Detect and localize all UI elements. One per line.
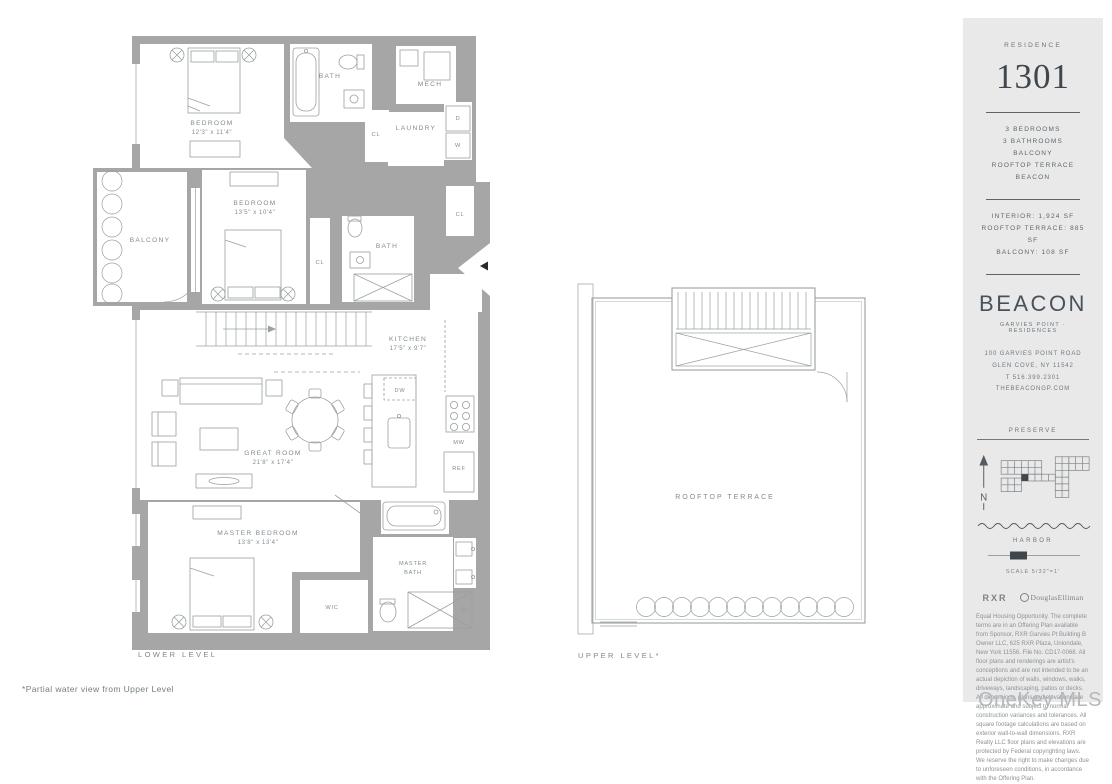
master-bedroom-label: MASTER BEDROOM <box>217 530 299 537</box>
mech-label: MECH <box>418 81 443 88</box>
area-item: ROOFTOP TERRACE: 885 SF <box>976 223 1090 247</box>
brand-tagline: GARVIES POINT · RESIDENCES <box>976 322 1090 334</box>
divider <box>977 439 1089 440</box>
douglas-elliman-icon <box>1020 593 1029 602</box>
scale-label: SCALE 5/32"=1' <box>976 569 1090 575</box>
feature-item: 3 BEDROOMS <box>976 124 1090 136</box>
area-item: BALCONY: 108 SF <box>976 247 1090 259</box>
contact-line: 100 GARVIES POINT ROAD <box>976 349 1090 361</box>
feature-item: ROOFTOP TERRACE <box>976 160 1090 172</box>
kitchen-label: KITCHEN <box>389 336 427 343</box>
dw-label: DW <box>395 388 406 394</box>
douglas-elliman-text: DouglasElliman <box>1031 593 1084 602</box>
ref-label: REF <box>452 466 466 472</box>
washer-label: W <box>455 143 461 149</box>
bath2-label: BATH <box>376 243 398 250</box>
wic-label: WIC <box>325 605 338 611</box>
room-mech <box>396 46 456 104</box>
developer-logos: RXR DouglasElliman <box>976 593 1090 603</box>
feature-list: 3 BEDROOMS 3 BATHROOMS BALCONY ROOFTOP T… <box>976 124 1090 184</box>
rooftop-terrace-label: ROOFTOP TERRACE <box>675 494 775 501</box>
feature-item: BEACON <box>976 172 1090 184</box>
dryer-label: D <box>456 116 461 122</box>
balcony-label: BALCONY <box>130 237 171 244</box>
residence-label: RESIDENCE <box>976 42 1090 49</box>
onekey-mls-watermark: OneKey MLS <box>978 689 1102 712</box>
lower-level-caption: LOWER LEVEL <box>138 650 217 659</box>
bedroom2-dims: 13'5" x 10'4" <box>235 210 276 216</box>
lower-level-floorplan: BEDROOM 12'3" x 11'4" BATH MECH LAUNDRY … <box>88 28 500 660</box>
master-bath-label-2: BATH <box>404 570 422 576</box>
contact-line: THEBEACONGP.COM <box>976 384 1090 396</box>
cl2-label: CL <box>316 260 325 266</box>
footnote: *Partial water view from Upper Level <box>22 684 174 694</box>
unit-location-marker <box>1021 474 1028 481</box>
divider <box>986 274 1080 275</box>
info-panel: RESIDENCE 1301 3 BEDROOMS 3 BATHROOMS BA… <box>963 18 1103 702</box>
contact-block: 100 GARVIES POINT ROAD GLEN COVE, NY 115… <box>976 349 1090 396</box>
bedroom1-label: BEDROOM <box>190 120 233 127</box>
north-arrow-icon: N <box>979 455 988 510</box>
unit-number: 1301 <box>976 57 1090 97</box>
contact-line: GLEN COVE, NY 11542 <box>976 361 1090 373</box>
preserve-label: PRESERVE <box>976 428 1090 434</box>
room-master-bath <box>373 537 453 631</box>
area-list: INTERIOR: 1,924 SF ROOFTOP TERRACE: 885 … <box>976 211 1090 259</box>
entry-hall <box>430 274 482 312</box>
divider <box>986 112 1080 113</box>
room-bath2 <box>342 216 414 302</box>
sink-niche <box>454 538 476 588</box>
mw-label: MW <box>453 440 465 446</box>
building-footprint <box>1001 457 1089 498</box>
scale-bar <box>976 551 1092 560</box>
north-label: N <box>980 492 987 503</box>
feature-item: 3 BATHROOMS <box>976 136 1090 148</box>
master-bedroom-dims: 13'8" x 13'4" <box>238 540 279 546</box>
tub-niche <box>381 500 449 534</box>
feature-item: BALCONY <box>976 148 1090 160</box>
divider <box>986 199 1080 200</box>
master-bath-label-1: MASTER <box>399 561 427 567</box>
upper-level-floorplan: ROOFTOP TERRACE UPPER LEVEL* <box>560 272 890 667</box>
room-laundry <box>388 112 444 166</box>
area-item: INTERIOR: 1,924 SF <box>976 211 1090 223</box>
bath1-label: BATH <box>319 73 341 80</box>
room-bedroom2 <box>202 170 306 304</box>
cl-hall-label: CL <box>372 132 381 138</box>
cl3-label: CL <box>456 212 465 218</box>
water-wave-icon <box>976 520 1092 530</box>
room-bedroom1 <box>140 44 284 168</box>
kitchen-dims: 17'5" x 9'7" <box>390 346 427 352</box>
terrace-door <box>817 372 847 402</box>
laundry-label: LAUNDRY <box>396 125 437 132</box>
great-room-dims: 21'8" x 17'4" <box>253 460 294 466</box>
upper-level-caption: UPPER LEVEL* <box>578 651 661 660</box>
site-map: N <box>976 448 1092 512</box>
rxr-logo: RXR <box>983 593 1008 603</box>
wall-notch <box>476 36 490 182</box>
contact-line: T 516.399.2301 <box>976 373 1090 385</box>
harbor-label: HARBOR <box>976 538 1090 544</box>
room-cl3 <box>446 186 474 236</box>
douglas-elliman-logo: DouglasElliman <box>1020 593 1084 602</box>
bedroom1-dims: 12'3" x 11'4" <box>192 130 232 136</box>
great-room-label: GREAT ROOM <box>244 450 301 457</box>
terrace-planters <box>637 598 854 617</box>
bedroom2-label: BEDROOM <box>233 200 276 207</box>
terrace-stairs <box>672 288 815 370</box>
room-great-kitchen <box>140 310 478 500</box>
brand-logo: BEACON <box>976 291 1090 317</box>
